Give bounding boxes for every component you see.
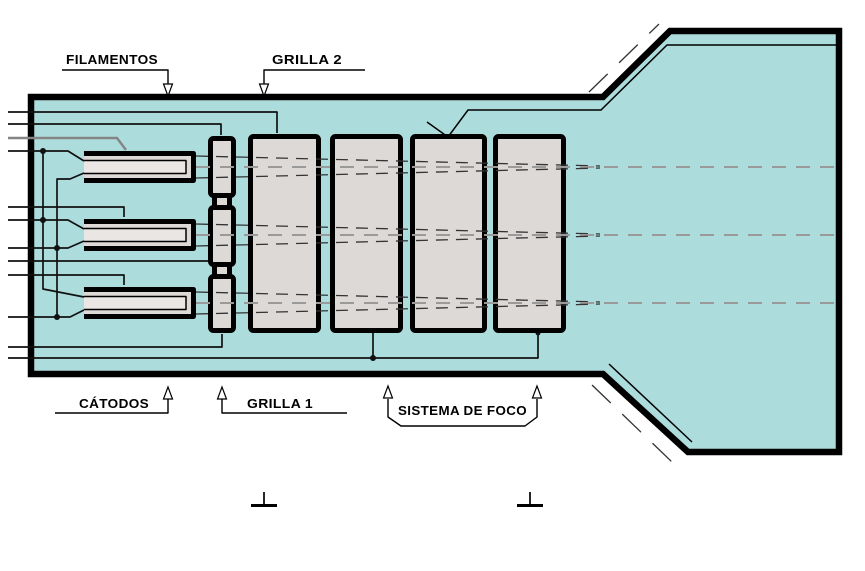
callout-sistema-de-foco: SISTEMA DE FOCO xyxy=(384,386,542,426)
junction-dot xyxy=(40,148,46,154)
junction-dot xyxy=(54,245,60,251)
label-grilla-2: GRILLA 2 xyxy=(272,52,342,67)
grilla1-arrow-up-icon xyxy=(218,387,227,399)
cathode-assembly-1 xyxy=(84,154,194,181)
cathode-assembly-2 xyxy=(84,222,194,249)
label-catodos: CÁTODOS xyxy=(79,396,149,411)
focus-electrode-3 xyxy=(496,137,564,331)
focus-electrode-2 xyxy=(413,137,485,331)
callout-filamentos: FILAMENTOS xyxy=(62,52,173,96)
filament3 xyxy=(84,297,186,310)
focus-electrode-1 xyxy=(333,137,401,331)
grilla2-leader xyxy=(264,70,365,84)
junction-dot xyxy=(40,217,46,223)
label-sistema-de-foco: SISTEMA DE FOCO xyxy=(398,403,527,418)
grid2-electrode xyxy=(251,137,319,331)
sistema-foco-arrow-up-right-icon xyxy=(533,386,542,398)
ground-symbols xyxy=(251,492,543,506)
callout-grilla-1: GRILLA 1 xyxy=(218,387,348,413)
label-filamentos: FILAMENTOS xyxy=(66,52,158,67)
label-grilla-1: GRILLA 1 xyxy=(247,396,313,411)
ground-symbol-2 xyxy=(517,492,543,506)
crt-electron-gun-diagram: FILAMENTOS GRILLA 2 CÁTODOS GRILLA 1 SIS… xyxy=(0,0,865,571)
filament2 xyxy=(84,229,186,242)
sistema-foco-arrow-up-left-icon xyxy=(384,386,393,398)
callout-grilla-2: GRILLA 2 xyxy=(260,52,366,96)
electrodes xyxy=(211,137,564,331)
catodos-arrow-up-icon xyxy=(164,387,173,399)
ground-symbol-1 xyxy=(251,492,277,506)
filamentos-leader xyxy=(62,70,168,84)
cathodes xyxy=(84,154,194,317)
callout-catodos: CÁTODOS xyxy=(55,387,173,413)
junction-dot xyxy=(370,355,376,361)
filament1 xyxy=(84,161,186,174)
junction-dot xyxy=(54,314,60,320)
cathode-assembly-3 xyxy=(84,290,194,317)
